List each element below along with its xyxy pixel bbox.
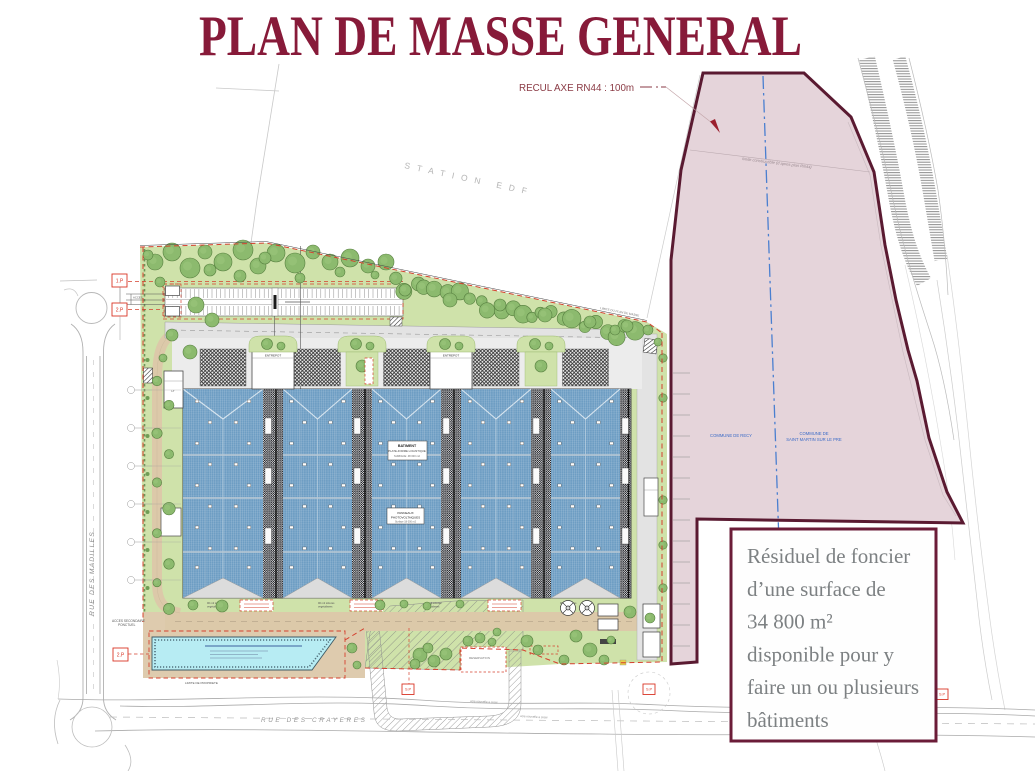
svg-text:voie nouvelle a creer: voie nouvelle a creer [520,714,548,719]
svg-text:PHOTOVOLTAIQUES: PHOTOVOLTAIQUES [391,516,420,520]
svg-text:LIMITE DE PROPRIETE: LIMITE DE PROPRIETE [185,681,218,685]
svg-text:COMMUNE DE RECY: COMMUNE DE RECY [710,433,752,438]
svg-text:PANNEAUX: PANNEAUX [397,511,413,515]
svg-text:90 m2 toitures: 90 m2 toitures [318,601,335,605]
svg-text:STATION EDF: STATION EDF [404,160,535,197]
svg-text:SAINT MARTIN SUR LE PRE: SAINT MARTIN SUR LE PRE [786,437,842,442]
svg-text:RUE DES CRAYERES: RUE DES CRAYERES [261,717,367,724]
svg-text:COMMUNE DE: COMMUNE DE [799,431,828,436]
svg-text:PLATE-FORME LOGISTIQUE: PLATE-FORME LOGISTIQUE [388,449,426,453]
svg-text:ENTREPOT: ENTREPOT [443,354,460,358]
svg-text:1.P: 1.P [116,278,124,284]
svg-text:vegetalisees: vegetalisees [318,605,333,609]
svg-text:S.P: S.P [405,688,412,692]
svg-text:34 800 m²: 34 800 m² [747,610,833,634]
svg-text:2.P: 2.P [117,652,125,658]
svg-text:bâtiments: bâtiments [747,708,829,732]
svg-text:Résiduel de foncier: Résiduel de foncier [747,544,910,568]
svg-text:PONCTUEL: PONCTUEL [118,623,136,627]
svg-text:RUE DES MADILLES: RUE DES MADILLES [89,531,96,616]
svg-text:ENTREPOT: ENTREPOT [265,354,282,358]
svg-text:Surface 18 000 m2: Surface 18 000 m2 [395,521,417,524]
svg-text:PLAN DE MASSE GENERAL: PLAN DE MASSE GENERAL [199,5,802,68]
svg-text:SURFACE: 48 000 m2: SURFACE: 48 000 m2 [394,454,421,458]
svg-text:BATIMENT: BATIMENT [398,444,417,448]
svg-text:d’une surface de: d’une surface de [747,577,886,601]
svg-text:S.P: S.P [939,693,946,697]
svg-text:faire un ou plusieurs: faire un ou plusieurs [747,675,919,699]
svg-text:RECUL AXE RN44 : 100m: RECUL AXE RN44 : 100m [519,83,634,94]
svg-text:disponible pour y: disponible pour y [747,642,894,666]
svg-text:LT: LT [171,389,174,393]
svg-text:S.P: S.P [646,688,653,692]
svg-text:RESERVATION: RESERVATION [469,656,490,660]
svg-text:ACCES: ACCES [133,296,143,300]
svg-text:2.P: 2.P [116,307,124,313]
svg-text:voie nouvelle a creer: voie nouvelle a creer [470,699,498,704]
